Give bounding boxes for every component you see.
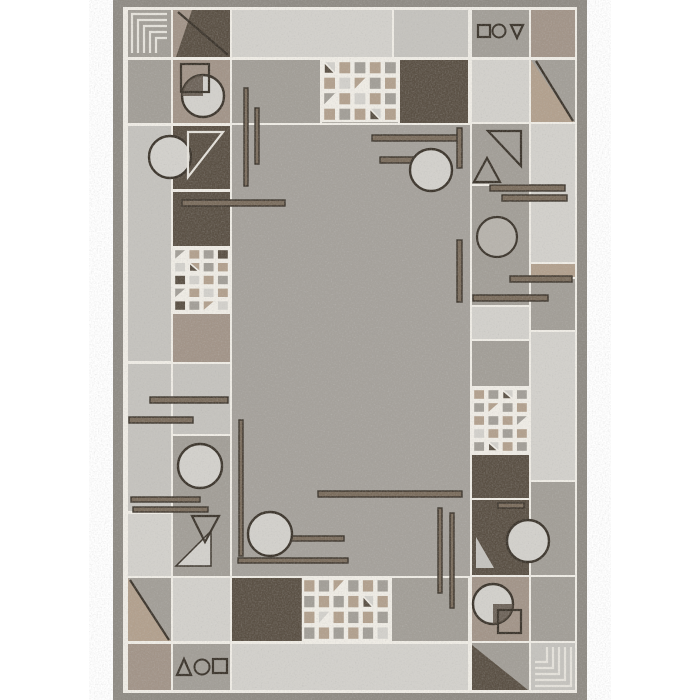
rug-product-photo bbox=[0, 0, 700, 700]
rug-texture-layer bbox=[113, 0, 587, 700]
rug-svg bbox=[0, 0, 700, 700]
carpet-grain bbox=[113, 0, 587, 700]
